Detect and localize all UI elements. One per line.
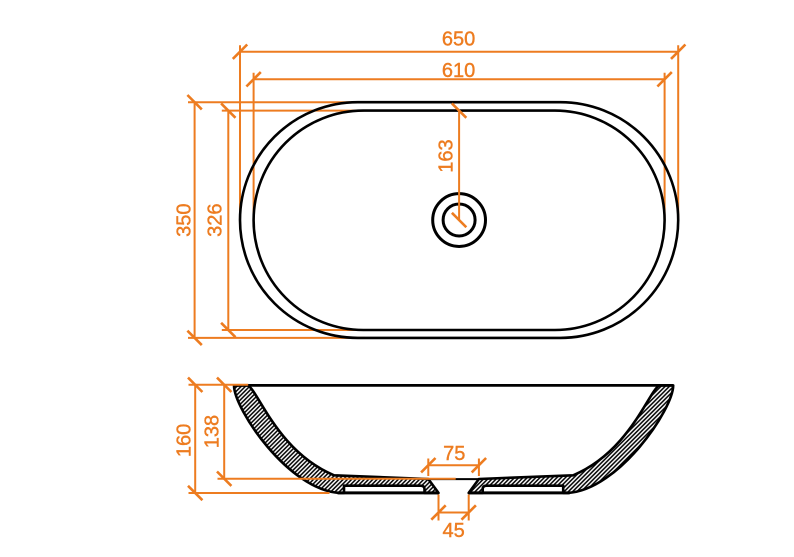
svg-text:650: 650 [442, 29, 475, 51]
svg-text:160: 160 [174, 424, 196, 457]
svg-text:350: 350 [174, 204, 196, 237]
svg-text:75: 75 [443, 443, 465, 465]
svg-text:138: 138 [201, 415, 223, 448]
svg-text:610: 610 [442, 60, 475, 82]
svg-text:163: 163 [435, 139, 457, 172]
svg-text:326: 326 [204, 204, 226, 237]
svg-text:45: 45 [442, 520, 464, 542]
